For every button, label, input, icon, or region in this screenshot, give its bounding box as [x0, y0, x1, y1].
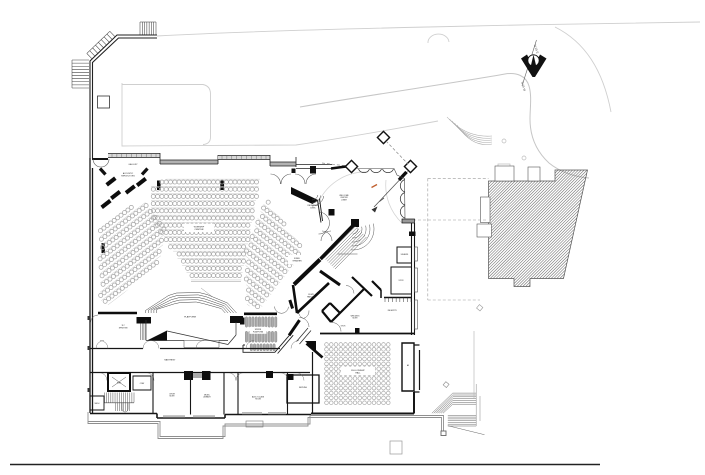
svg-text:HALL: HALL [355, 372, 361, 375]
svg-text:REGISTRY: REGISTRY [388, 310, 398, 312]
svg-text:SUITE: SUITE [169, 396, 175, 398]
svg-text:STOR: STOR [399, 280, 405, 282]
svg-text:ROOM: ROOM [255, 399, 261, 401]
svg-text:USHERS: USHERS [401, 254, 409, 256]
svg-text:STOR: STOR [341, 326, 346, 328]
svg-text:LIBRARY: LIBRARY [203, 396, 211, 399]
svg-text:PLATFORM: PLATFORM [184, 316, 196, 319]
svg-text:PLATFORM: PLATFORM [253, 330, 264, 333]
svg-text:SERVING: SERVING [299, 387, 308, 389]
svg-text:COAT: COAT [140, 382, 145, 385]
svg-text:DESK: DESK [310, 207, 316, 209]
svg-text:THEATER: THEATER [292, 259, 302, 262]
svg-text:CENTER: CENTER [195, 229, 204, 231]
svg-text:REFLECTORS: REFLECTORS [121, 175, 135, 177]
svg-text:MECH: MECH [95, 403, 101, 405]
svg-text:LOBBY: LOBBY [341, 199, 348, 201]
svg-text:SPKR RM: SPKR RM [119, 327, 128, 329]
svg-text:GALLERY: GALLERY [128, 163, 138, 166]
svg-text:NARTHEXT: NARTHEXT [164, 359, 176, 362]
svg-text:PARLOR: PARLOR [307, 295, 315, 298]
svg-text:SUITE: SUITE [352, 318, 358, 320]
